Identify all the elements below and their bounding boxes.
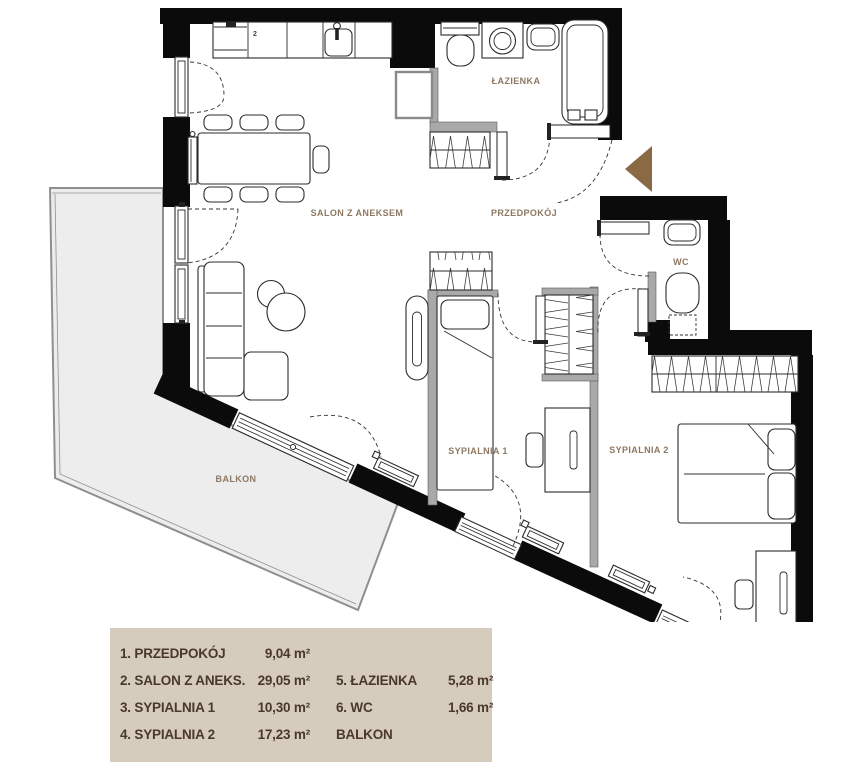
bedroom2 [652, 356, 798, 622]
chair [313, 146, 329, 173]
room-label-sypialnia2: SYPIALNIA 2 [609, 445, 669, 455]
door-bathroom [494, 132, 550, 180]
legend-room-name: 4. SYPIALNIA 2 [120, 727, 252, 742]
dining-table [198, 133, 310, 184]
room-label-wc: WC [673, 257, 689, 267]
partition-salon-syp1 [428, 290, 437, 505]
chair [204, 115, 232, 130]
sofa-area [198, 262, 305, 400]
room-label-przedpokoj: PRZEDPOKÓJ [491, 207, 557, 218]
wall-hall-right [600, 196, 727, 220]
balcony-door-syp1 [455, 517, 522, 559]
chair [276, 115, 304, 130]
sink-wc [664, 220, 700, 245]
wall-below-wc-right [727, 330, 812, 355]
wall-left-upper [163, 8, 190, 58]
wall-wc-right [708, 220, 730, 342]
legend-row: 3. SYPIALNIA 1 10,30 m² 6. WC 1,66 m² [120, 694, 486, 721]
window-salon-1 [175, 57, 224, 117]
door-syp2 [598, 289, 650, 336]
legend-room-name: 3. SYPIALNIA 1 [120, 700, 252, 715]
balcony [50, 188, 398, 610]
wardrobe-syp1-top [430, 252, 492, 290]
chair [240, 187, 268, 202]
room-label-sypialnia1: SYPIALNIA 1 [448, 446, 508, 456]
entrance-arrow-icon [625, 146, 652, 192]
legend-row: 4. SYPIALNIA 2 17,23 m² BALKON [120, 721, 486, 748]
desk-chair [526, 433, 543, 467]
bed-single [437, 296, 493, 490]
wall-below-wc-left [648, 339, 727, 355]
balcony-floor [50, 188, 398, 610]
floorplan-drawing: 2 [0, 0, 841, 622]
toilet-bath [441, 22, 479, 66]
door-syp1 [498, 293, 548, 344]
legend-room-area: 10,30 m² [252, 700, 310, 715]
diagonal-radiators [368, 451, 657, 596]
room-label-balkon: BALKON [216, 474, 257, 484]
legend-panel: 1. PRZEDPOKÓJ 9,04 m² 2. SALON Z ANEKS. … [110, 628, 492, 762]
balcony-door-syp2 [656, 610, 761, 622]
legend-row: 1. PRZEDPOKÓJ 9,04 m² [120, 640, 486, 667]
wardrobe-syp1-side [545, 295, 593, 374]
radiator-tall-salon [406, 296, 428, 380]
room-label-salon: SALON Z ANEKSEM [311, 208, 404, 218]
window-salon-2 [175, 265, 188, 324]
legend-room-name: 1. PRZEDPOKÓJ [120, 646, 252, 661]
radiator-dining [188, 132, 197, 185]
fridge-handle [226, 22, 236, 27]
desk-syp2 [735, 551, 796, 622]
legend-room-name: BALKON [336, 727, 448, 742]
pillow [441, 300, 489, 329]
chair [204, 187, 232, 202]
bathroom [441, 20, 608, 124]
wardrobe-cap-bottom [542, 374, 598, 381]
wardrobe-cap-top [542, 288, 598, 295]
wall-left-mid [163, 117, 190, 207]
wardrobe-syp2 [652, 356, 798, 392]
balcony-door-left [175, 202, 238, 263]
legend-room-area: 9,04 m² [252, 646, 310, 661]
door-wc [597, 220, 649, 276]
door-entrance [547, 123, 612, 203]
balcony-door-syp2-arc [683, 577, 721, 622]
sink-bath [527, 24, 559, 50]
wc-room [664, 220, 700, 335]
partition-wc-left [648, 272, 656, 322]
coffee-table-large [267, 293, 305, 331]
hallway [430, 132, 490, 168]
legend-room-area: 5,28 m² [448, 673, 501, 688]
floorplan-page: 2 [0, 0, 841, 772]
desk-chair [735, 580, 753, 609]
chair [276, 187, 304, 202]
kitchen-tall-cabinet [396, 72, 432, 118]
kitchen-unit-number: 2 [253, 31, 257, 38]
wall-wc-bottom-stub [645, 320, 670, 342]
sofa-chaise [244, 352, 288, 400]
chair [240, 115, 268, 130]
room-label-lazienka: ŁAZIENKA [492, 76, 541, 86]
pillow [768, 429, 795, 470]
washing-machine [482, 22, 523, 58]
wardrobe-hall [430, 132, 490, 168]
toilet-wc [666, 273, 699, 335]
pillow [768, 473, 795, 519]
partition-bath-bottom [430, 122, 497, 132]
dining-set [188, 115, 329, 202]
legend-room-name: 5. ŁAZIENKA [336, 673, 448, 688]
bed-double [678, 424, 796, 523]
desk-syp1 [526, 408, 590, 492]
legend-room-name: 2. SALON Z ANEKS. [120, 673, 252, 688]
legend-room-area: 17,23 m² [252, 727, 310, 742]
legend-row: 2. SALON Z ANEKS. 29,05 m² 5. ŁAZIENKA 5… [120, 667, 486, 694]
legend-room-area: 29,05 m² [252, 673, 310, 688]
legend-room-area: 1,66 m² [448, 700, 501, 715]
bathtub [562, 20, 608, 124]
wall-kitchen-bath [390, 22, 435, 68]
sofa-seat [204, 262, 244, 396]
legend-room-name: 6. WC [336, 700, 448, 715]
